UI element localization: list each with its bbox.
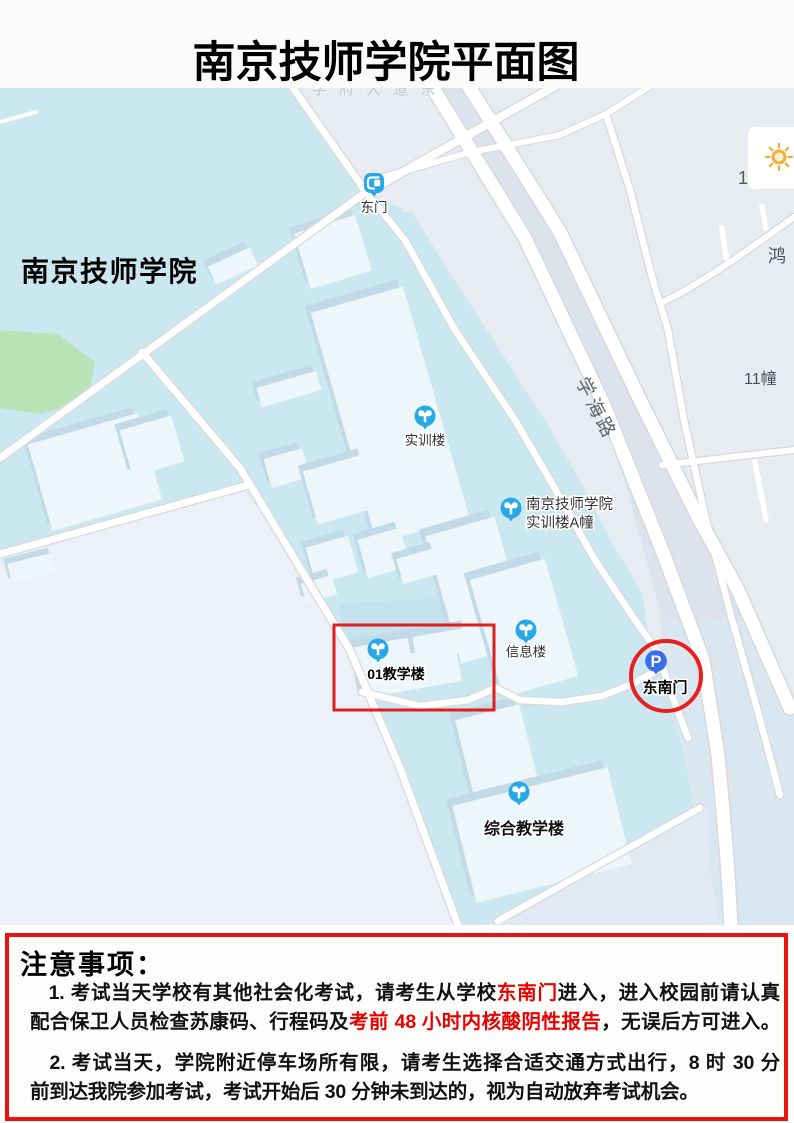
svg-text:01教学楼: 01教学楼 xyxy=(367,666,425,682)
svg-text:实训楼: 实训楼 xyxy=(405,433,446,448)
svg-text:P: P xyxy=(650,653,661,671)
svg-text:学府大道东: 学府大道东 xyxy=(312,88,447,98)
svg-text:东南门: 东南门 xyxy=(642,679,687,697)
svg-text:南京技师学院: 南京技师学院 xyxy=(21,255,198,287)
svg-text:南京技师学院: 南京技师学院 xyxy=(526,496,613,513)
svg-text:实训楼A幢: 实训楼A幢 xyxy=(526,514,594,532)
svg-text:综合教学楼: 综合教学楼 xyxy=(484,819,564,838)
svg-text:1: 1 xyxy=(738,168,748,188)
svg-text:东门: 东门 xyxy=(361,200,388,215)
svg-text:11幢: 11幢 xyxy=(744,370,777,388)
svg-text:鸿: 鸿 xyxy=(768,246,786,266)
svg-text:信息楼: 信息楼 xyxy=(506,644,547,660)
